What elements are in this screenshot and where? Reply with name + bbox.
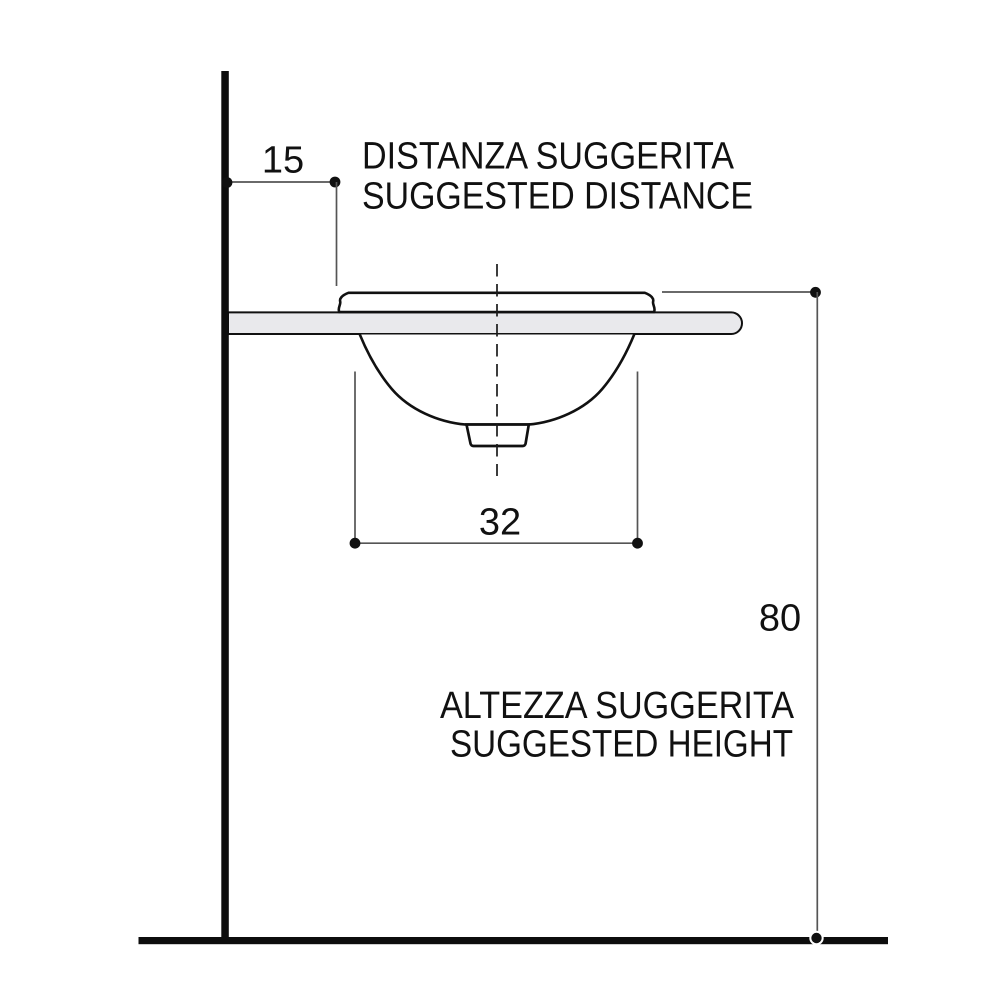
svg-text:SUGGESTED HEIGHT: SUGGESTED HEIGHT [450,724,793,766]
svg-text:32: 32 [479,502,521,544]
svg-text:DISTANZA SUGGERITA: DISTANZA SUGGERITA [362,136,735,178]
svg-text:SUGGESTED DISTANCE: SUGGESTED DISTANCE [362,176,753,218]
svg-text:ALTEZZA SUGGERITA: ALTEZZA SUGGERITA [440,685,795,727]
svg-text:15: 15 [262,140,304,182]
svg-text:80: 80 [759,598,801,640]
